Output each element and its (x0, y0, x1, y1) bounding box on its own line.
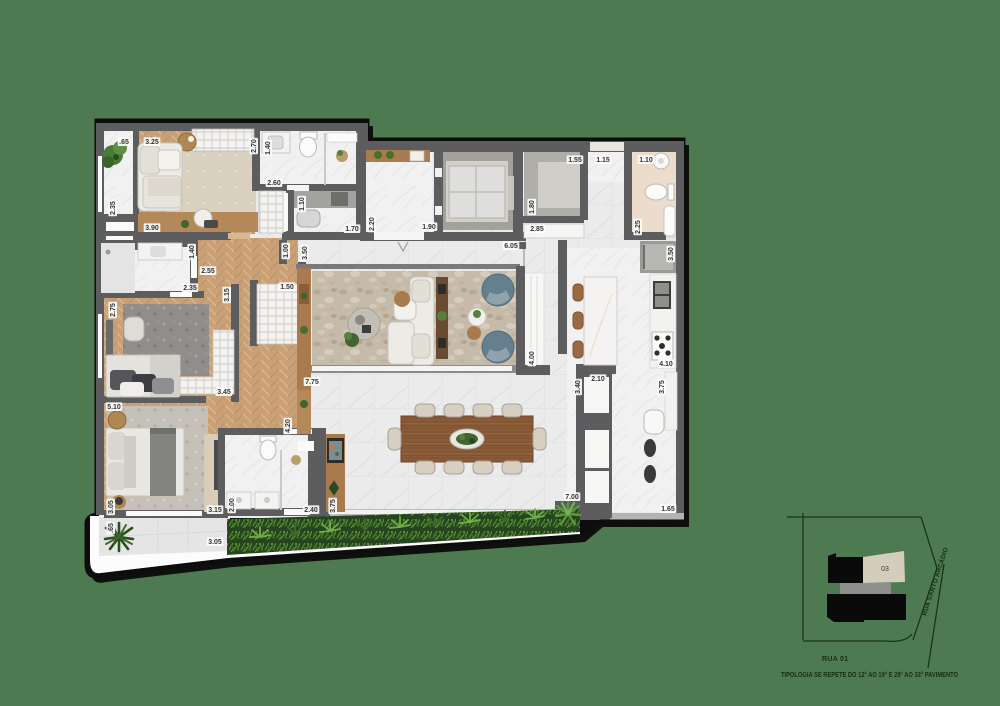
svg-text:3.25: 3.25 (145, 139, 159, 146)
svg-text:3.15: 3.15 (224, 288, 231, 302)
svg-text:1.15: 1.15 (596, 157, 610, 164)
svg-text:1.00: 1.00 (283, 244, 290, 258)
svg-text:.65: .65 (108, 523, 115, 533)
svg-text:2.00: 2.00 (229, 498, 236, 512)
svg-text:1.55: 1.55 (568, 157, 582, 164)
svg-text:3.75: 3.75 (330, 499, 337, 513)
svg-text:2.10: 2.10 (591, 376, 605, 383)
svg-text:3.15: 3.15 (208, 507, 222, 514)
svg-text:7.75: 7.75 (305, 379, 319, 386)
svg-text:4.00: 4.00 (529, 351, 536, 365)
svg-text:5.10: 5.10 (107, 404, 121, 411)
svg-text:2.85: 2.85 (530, 226, 544, 233)
svg-text:1.10: 1.10 (299, 197, 306, 211)
svg-text:3.90: 3.90 (145, 225, 159, 232)
svg-text:2.35: 2.35 (183, 285, 197, 292)
svg-text:1.40: 1.40 (189, 245, 196, 259)
svg-text:3.50: 3.50 (668, 247, 675, 261)
svg-text:2.75: 2.75 (110, 303, 117, 317)
svg-text:2.60: 2.60 (267, 180, 281, 187)
svg-text:2.55: 2.55 (201, 268, 215, 275)
svg-text:1.80: 1.80 (529, 200, 536, 214)
svg-text:7.00: 7.00 (565, 494, 579, 501)
svg-text:2.70: 2.70 (251, 139, 258, 153)
svg-text:3.05: 3.05 (108, 500, 115, 514)
svg-text:1.10: 1.10 (639, 157, 653, 164)
svg-text:2.40: 2.40 (304, 507, 318, 514)
svg-text:4.20: 4.20 (285, 419, 292, 433)
svg-text:3.50: 3.50 (302, 246, 309, 260)
svg-text:1.50: 1.50 (280, 284, 294, 291)
svg-text:3.45: 3.45 (217, 389, 231, 396)
svg-text:3.05: 3.05 (208, 539, 222, 546)
svg-text:6.05: 6.05 (504, 243, 518, 250)
svg-text:1.90: 1.90 (422, 224, 436, 231)
svg-text:2.25: 2.25 (635, 220, 642, 234)
svg-text:.65: .65 (119, 139, 129, 146)
svg-text:1.40: 1.40 (265, 141, 272, 155)
svg-text:03: 03 (881, 566, 889, 573)
svg-text:4.10: 4.10 (659, 361, 673, 368)
svg-text:RUA 01: RUA 01 (822, 656, 848, 663)
svg-text:2.20: 2.20 (369, 217, 376, 231)
svg-text:1.65: 1.65 (661, 506, 675, 513)
svg-text:2.35: 2.35 (110, 201, 117, 215)
svg-text:3.75: 3.75 (659, 380, 666, 394)
svg-text:3.40: 3.40 (575, 380, 582, 394)
svg-text:1.70: 1.70 (345, 226, 359, 233)
svg-text:TIPOLOGIA SE REPETE DO 12° AO: TIPOLOGIA SE REPETE DO 12° AO 19° E 28° … (781, 670, 958, 679)
